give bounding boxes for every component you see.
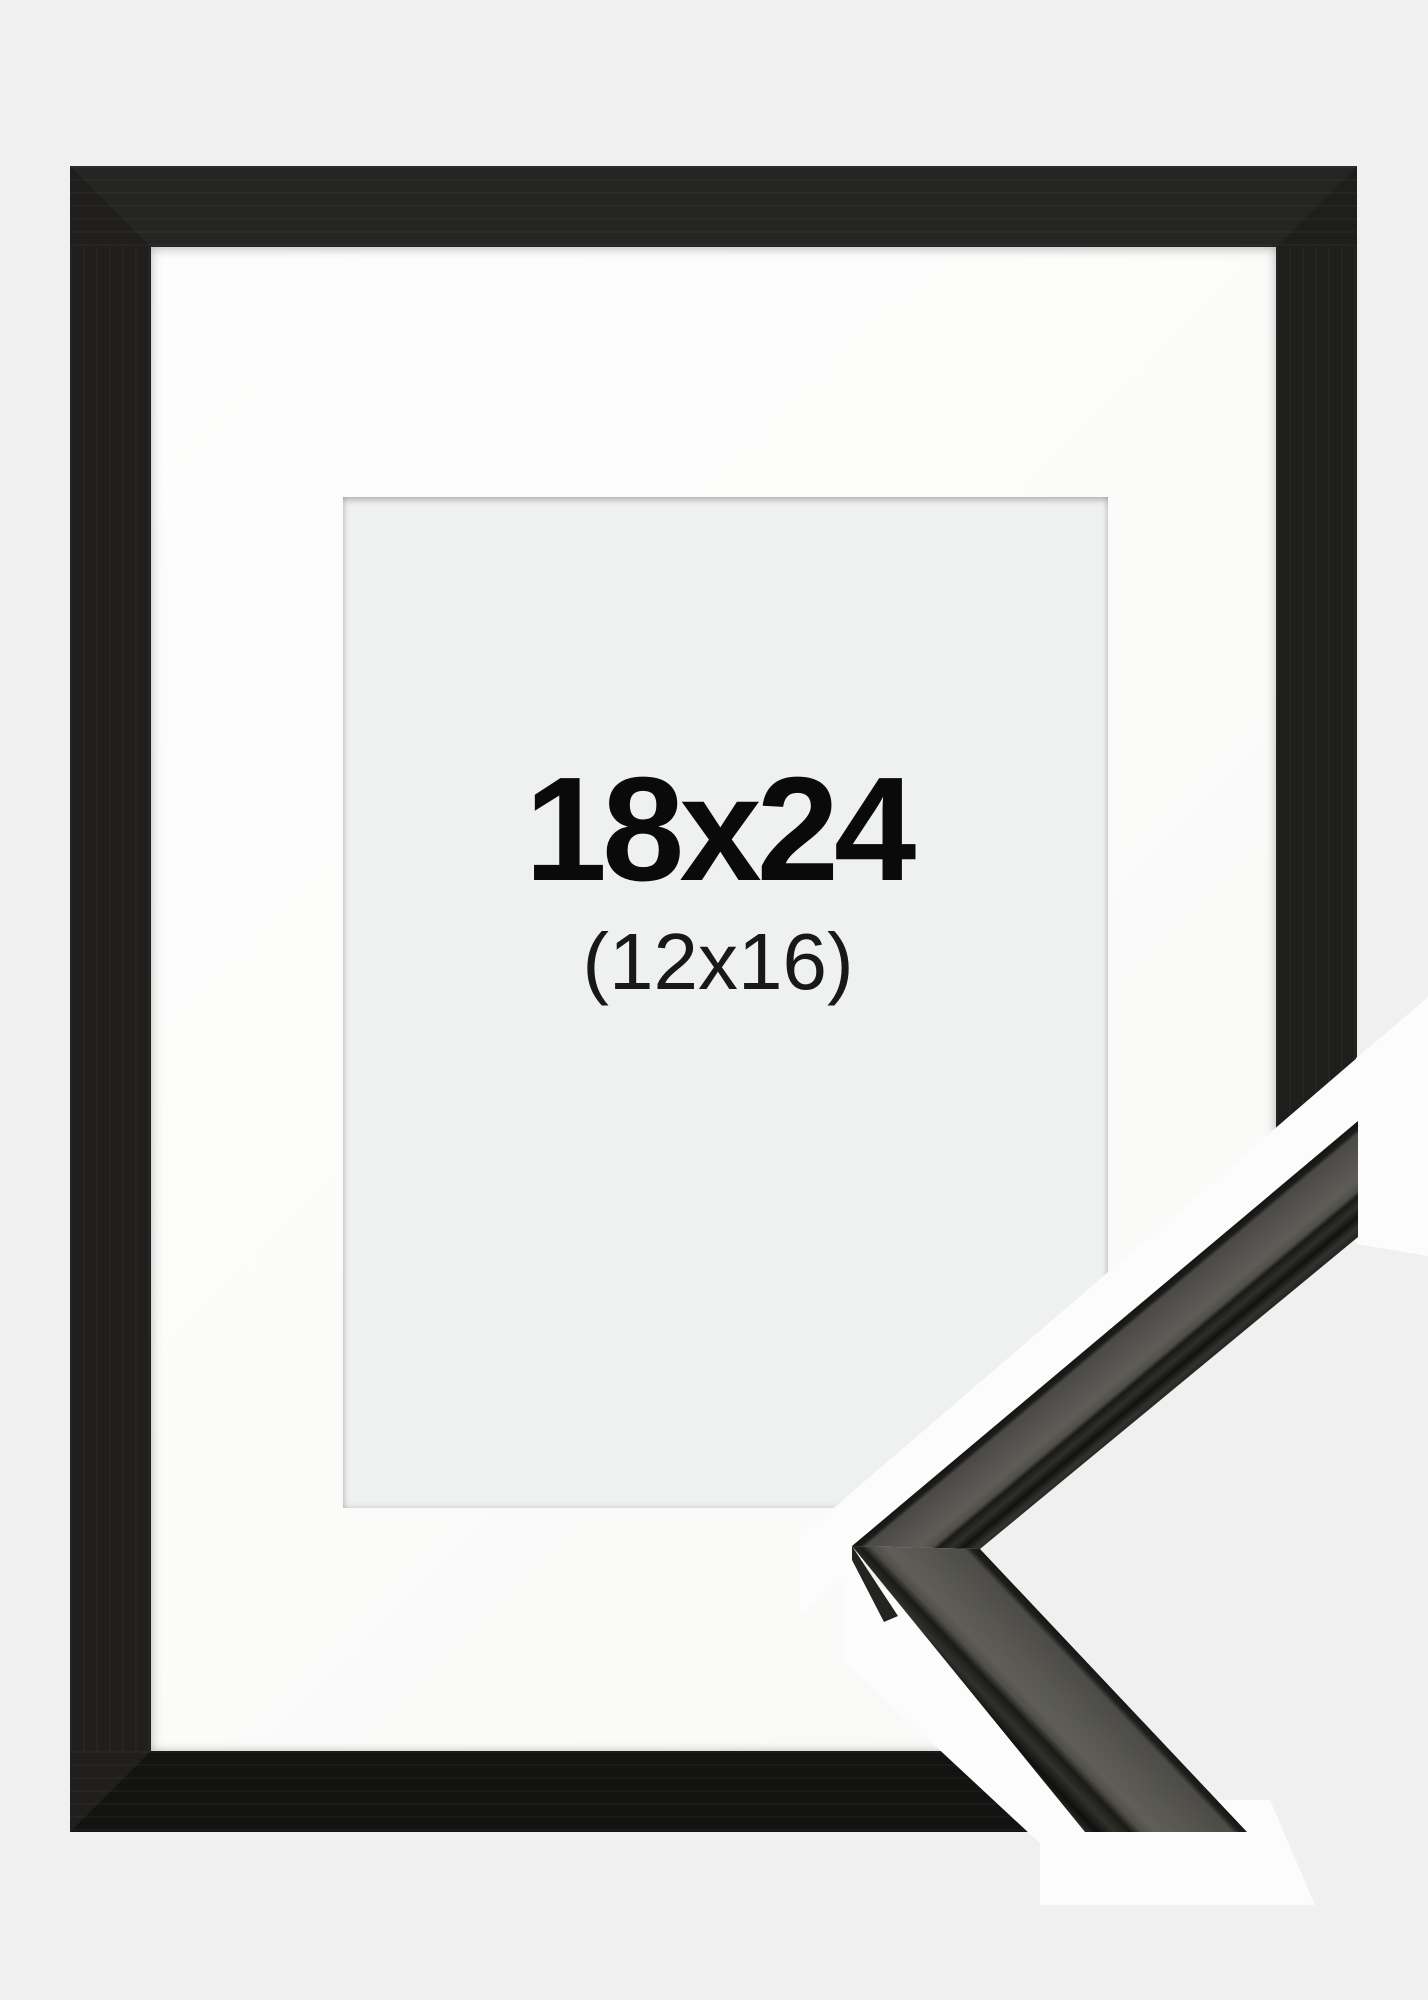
product-photo: 18x24 (12x16) [0, 0, 1428, 2000]
white-gap-upper-end [1356, 998, 1428, 1256]
corner-sample-composition [0, 0, 1428, 2000]
